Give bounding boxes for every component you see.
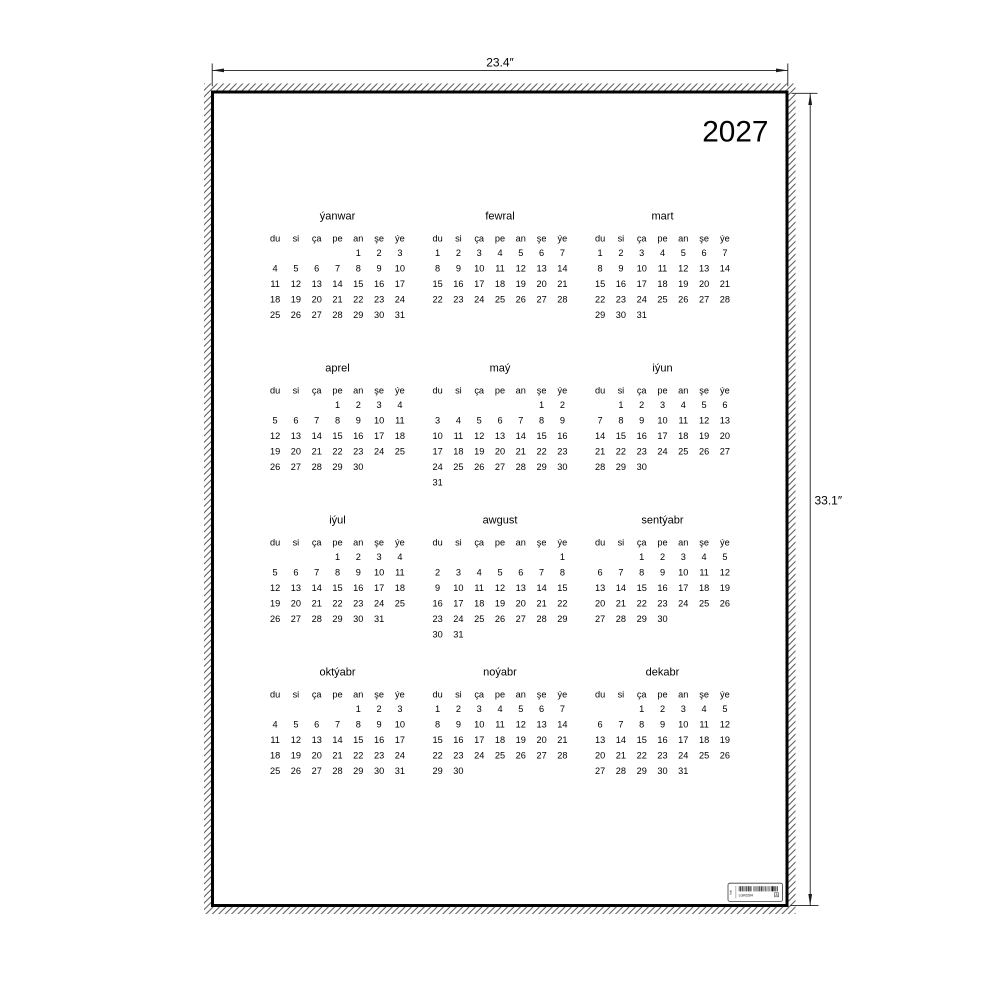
svg-text:3: 3 [377, 552, 382, 562]
svg-text:22: 22 [595, 294, 605, 304]
svg-text:20: 20 [536, 279, 546, 289]
svg-text:18: 18 [453, 446, 463, 456]
svg-text:28: 28 [516, 462, 526, 472]
svg-text:14: 14 [616, 583, 626, 593]
svg-text:1: 1 [618, 400, 623, 410]
svg-text:11: 11 [699, 720, 709, 730]
svg-text:ýe: ýe [395, 386, 405, 396]
svg-text:27: 27 [312, 310, 322, 320]
svg-text:25: 25 [395, 446, 405, 456]
svg-text:8: 8 [356, 720, 361, 730]
svg-text:10: 10 [395, 263, 405, 273]
svg-text:19: 19 [699, 431, 709, 441]
svg-text:10: 10 [374, 415, 384, 425]
svg-text:21: 21 [557, 735, 567, 745]
svg-text:19: 19 [720, 735, 730, 745]
svg-text:20: 20 [312, 751, 322, 761]
svg-text:2: 2 [639, 400, 644, 410]
svg-text:5: 5 [273, 568, 278, 578]
svg-text:an: an [516, 690, 526, 700]
svg-text:7: 7 [314, 568, 319, 578]
svg-text:si: si [618, 386, 625, 396]
svg-text:ça: ça [637, 690, 648, 700]
svg-text:17: 17 [374, 583, 384, 593]
svg-text:17: 17 [678, 735, 688, 745]
svg-text:28: 28 [332, 310, 342, 320]
svg-text:6: 6 [539, 248, 544, 258]
svg-text:18: 18 [270, 294, 280, 304]
svg-text:12: 12 [720, 720, 730, 730]
svg-text:si: si [455, 386, 462, 396]
svg-text:29: 29 [637, 614, 647, 624]
svg-text:6: 6 [293, 415, 298, 425]
svg-text:du: du [270, 233, 280, 243]
svg-text:12: 12 [516, 263, 526, 273]
svg-text:24: 24 [637, 294, 647, 304]
svg-text:9: 9 [456, 263, 461, 273]
svg-text:23: 23 [657, 599, 667, 609]
svg-text:pe: pe [495, 386, 505, 396]
svg-text:an: an [678, 690, 688, 700]
svg-text:26: 26 [516, 294, 526, 304]
svg-text:du: du [270, 538, 280, 548]
svg-text:26: 26 [270, 462, 280, 472]
svg-text:ýe: ýe [720, 690, 730, 700]
svg-text:an: an [678, 233, 688, 243]
svg-text:30: 30 [374, 310, 384, 320]
svg-text:21: 21 [616, 751, 626, 761]
svg-text:pe: pe [657, 690, 667, 700]
svg-text:15: 15 [353, 279, 363, 289]
svg-text:10: 10 [474, 720, 484, 730]
svg-text:16: 16 [616, 279, 626, 289]
svg-text:2: 2 [560, 400, 565, 410]
svg-text:4: 4 [497, 248, 502, 258]
svg-text:ça: ça [312, 233, 323, 243]
svg-text:ça: ça [474, 690, 485, 700]
svg-text:5: 5 [681, 248, 686, 258]
svg-text:30: 30 [616, 310, 626, 320]
svg-text:si: si [618, 538, 625, 548]
svg-text:16: 16 [453, 279, 463, 289]
svg-text:13: 13 [291, 583, 301, 593]
svg-text:4: 4 [273, 720, 278, 730]
svg-text:25: 25 [699, 599, 709, 609]
svg-text:3: 3 [377, 400, 382, 410]
svg-text:7: 7 [618, 720, 623, 730]
svg-text:30: 30 [353, 462, 363, 472]
svg-text:şe: şe [537, 690, 547, 700]
svg-text:5: 5 [722, 704, 727, 714]
svg-text:19: 19 [516, 735, 526, 745]
svg-text:şe: şe [537, 233, 547, 243]
svg-text:30: 30 [657, 766, 667, 776]
svg-text:13: 13 [720, 415, 730, 425]
svg-text:23: 23 [353, 599, 363, 609]
svg-text:8: 8 [435, 263, 440, 273]
svg-text:26: 26 [291, 766, 301, 776]
svg-text:2: 2 [456, 704, 461, 714]
svg-text:18: 18 [495, 735, 505, 745]
svg-text:18: 18 [474, 599, 484, 609]
svg-text:25: 25 [495, 751, 505, 761]
svg-text:16: 16 [374, 279, 384, 289]
svg-text:ýe: ýe [395, 538, 405, 548]
svg-text:19: 19 [270, 446, 280, 456]
svg-text:7: 7 [722, 248, 727, 258]
svg-text:29: 29 [353, 766, 363, 776]
svg-text:pe: pe [495, 233, 505, 243]
svg-text:22: 22 [432, 751, 442, 761]
svg-text:30: 30 [432, 630, 442, 640]
svg-text:13: 13 [536, 263, 546, 273]
svg-text:3: 3 [639, 248, 644, 258]
svg-text:ça: ça [474, 233, 485, 243]
svg-text:an: an [353, 386, 363, 396]
svg-text:12: 12 [474, 431, 484, 441]
svg-text:13: 13 [536, 720, 546, 730]
svg-text:şe: şe [374, 386, 384, 396]
svg-text:10: 10 [678, 720, 688, 730]
svg-text:si: si [618, 233, 625, 243]
svg-text:an: an [353, 690, 363, 700]
svg-text:13: 13 [312, 279, 322, 289]
svg-text:17: 17 [637, 279, 647, 289]
svg-text:11: 11 [395, 415, 405, 425]
svg-text:2: 2 [660, 704, 665, 714]
svg-text:an: an [678, 538, 688, 548]
svg-text:25: 25 [453, 462, 463, 472]
svg-text:9: 9 [456, 720, 461, 730]
svg-text:15: 15 [637, 583, 647, 593]
svg-text:26: 26 [291, 310, 301, 320]
svg-text:16: 16 [453, 735, 463, 745]
svg-text:28: 28 [312, 614, 322, 624]
svg-text:27: 27 [536, 294, 546, 304]
svg-text:ça: ça [474, 386, 485, 396]
svg-text:2027: 2027 [702, 116, 768, 149]
svg-text:27: 27 [595, 614, 605, 624]
svg-text:14: 14 [595, 431, 605, 441]
svg-text:20: 20 [536, 735, 546, 745]
svg-text:27: 27 [720, 446, 730, 456]
svg-text:si: si [455, 690, 462, 700]
svg-text:28: 28 [595, 462, 605, 472]
svg-text:24: 24 [395, 294, 405, 304]
svg-text:10: 10 [678, 568, 688, 578]
svg-text:14: 14 [720, 263, 730, 273]
svg-text:15: 15 [353, 735, 363, 745]
svg-text:du: du [432, 233, 442, 243]
svg-text:17: 17 [432, 446, 442, 456]
svg-text:10: 10 [657, 415, 667, 425]
svg-text:28: 28 [557, 751, 567, 761]
svg-text:21: 21 [595, 446, 605, 456]
svg-text:maý: maý [490, 362, 511, 374]
svg-text:7: 7 [618, 568, 623, 578]
svg-text:8: 8 [356, 263, 361, 273]
svg-text:20: 20 [291, 599, 301, 609]
svg-text:20: 20 [595, 751, 605, 761]
svg-text:1: 1 [639, 552, 644, 562]
svg-text:21: 21 [720, 279, 730, 289]
svg-text:3: 3 [681, 704, 686, 714]
svg-text:sentýabr: sentýabr [641, 515, 684, 527]
svg-text:5: 5 [518, 248, 523, 258]
svg-text:si: si [293, 233, 300, 243]
svg-text:19: 19 [678, 279, 688, 289]
svg-text:26: 26 [516, 751, 526, 761]
svg-text:oktýabr: oktýabr [319, 667, 355, 679]
svg-text:9: 9 [356, 415, 361, 425]
svg-text:27: 27 [699, 294, 709, 304]
svg-text:17: 17 [453, 599, 463, 609]
svg-text:6: 6 [539, 704, 544, 714]
svg-text:2: 2 [435, 568, 440, 578]
svg-text:ça: ça [637, 538, 648, 548]
svg-text:9: 9 [660, 720, 665, 730]
svg-text:12: 12 [291, 735, 301, 745]
svg-text:ýe: ýe [558, 233, 568, 243]
svg-text:26: 26 [495, 614, 505, 624]
svg-text:13: 13 [312, 735, 322, 745]
svg-text:1: 1 [639, 704, 644, 714]
svg-text:du: du [270, 386, 280, 396]
svg-text:15: 15 [332, 583, 342, 593]
svg-text:15: 15 [557, 583, 567, 593]
svg-text:16: 16 [657, 735, 667, 745]
svg-text:19: 19 [720, 583, 730, 593]
svg-text:12: 12 [291, 279, 301, 289]
svg-text:awgust: awgust [483, 515, 518, 527]
svg-text:24: 24 [374, 446, 384, 456]
svg-text:28: 28 [536, 614, 546, 624]
svg-text:7: 7 [518, 415, 523, 425]
svg-text:4: 4 [702, 704, 707, 714]
svg-text:8: 8 [435, 720, 440, 730]
svg-text:9: 9 [560, 415, 565, 425]
svg-text:12: 12 [720, 568, 730, 578]
svg-text:şe: şe [374, 233, 384, 243]
svg-text:9: 9 [618, 263, 623, 273]
svg-text:9: 9 [356, 568, 361, 578]
svg-text:23: 23 [432, 614, 442, 624]
svg-text:13: 13 [595, 735, 605, 745]
svg-text:8: 8 [335, 415, 340, 425]
svg-text:22: 22 [332, 599, 342, 609]
svg-text:31: 31 [432, 477, 442, 487]
svg-text:27: 27 [291, 462, 301, 472]
svg-text:1: 1 [356, 704, 361, 714]
svg-text:iýul: iýul [329, 515, 346, 527]
svg-text:3: 3 [397, 248, 402, 258]
svg-text:ça: ça [637, 233, 648, 243]
svg-text:ýe: ýe [558, 386, 568, 396]
svg-text:1: 1 [539, 400, 544, 410]
svg-text:du: du [432, 386, 442, 396]
svg-text:30: 30 [657, 614, 667, 624]
svg-text:an: an [353, 233, 363, 243]
svg-text:7: 7 [335, 263, 340, 273]
svg-text:14: 14 [516, 431, 526, 441]
svg-text:20: 20 [291, 446, 301, 456]
svg-text:16: 16 [557, 431, 567, 441]
svg-text:du: du [595, 386, 605, 396]
svg-text:ça: ça [637, 386, 648, 396]
svg-text:1: 1 [435, 248, 440, 258]
svg-text:1: 1 [335, 552, 340, 562]
svg-text:ýanwar: ýanwar [320, 210, 356, 222]
svg-text:ça: ça [312, 386, 323, 396]
svg-text:an: an [678, 386, 688, 396]
svg-text:6: 6 [314, 263, 319, 273]
svg-text:pe: pe [495, 690, 505, 700]
svg-text:7: 7 [560, 704, 565, 714]
svg-text:du: du [595, 538, 605, 548]
svg-text:1: 1 [560, 552, 565, 562]
svg-text:7: 7 [598, 415, 603, 425]
svg-text:23: 23 [616, 294, 626, 304]
svg-text:24: 24 [678, 751, 688, 761]
svg-text:10: 10 [374, 568, 384, 578]
svg-text:23: 23 [374, 751, 384, 761]
svg-text:24: 24 [432, 462, 442, 472]
svg-text:24: 24 [395, 751, 405, 761]
svg-text:23: 23 [637, 446, 647, 456]
svg-text:8: 8 [560, 568, 565, 578]
svg-text:12: 12 [516, 720, 526, 730]
svg-text:du: du [595, 233, 605, 243]
svg-text:13: 13 [291, 431, 301, 441]
svg-text:ça: ça [312, 690, 323, 700]
svg-text:23: 23 [353, 446, 363, 456]
svg-text:23.4″: 23.4″ [486, 55, 514, 69]
svg-text:5: 5 [273, 415, 278, 425]
svg-text:ýe: ýe [395, 233, 405, 243]
svg-text:15: 15 [536, 431, 546, 441]
svg-text:14: 14 [557, 720, 567, 730]
svg-text:1: 1 [435, 704, 440, 714]
svg-text:22: 22 [557, 599, 567, 609]
svg-text:6: 6 [702, 248, 707, 258]
svg-text:11: 11 [270, 279, 280, 289]
svg-text:17: 17 [395, 735, 405, 745]
svg-text:9: 9 [377, 263, 382, 273]
svg-text:10: 10 [637, 263, 647, 273]
svg-text:si: si [618, 690, 625, 700]
svg-text:17: 17 [374, 431, 384, 441]
svg-text:pe: pe [657, 386, 667, 396]
svg-text:12: 12 [678, 263, 688, 273]
svg-text:fewral: fewral [485, 210, 514, 222]
svg-text:ýe: ýe [558, 538, 568, 548]
svg-text:29: 29 [332, 462, 342, 472]
svg-text:20: 20 [312, 294, 322, 304]
svg-text:du: du [432, 538, 442, 548]
svg-text:30: 30 [353, 614, 363, 624]
svg-text:27: 27 [495, 462, 505, 472]
svg-text:10: 10 [432, 431, 442, 441]
svg-text:6: 6 [598, 720, 603, 730]
svg-text:15: 15 [637, 735, 647, 745]
svg-text:28: 28 [557, 294, 567, 304]
svg-text:13: 13 [516, 583, 526, 593]
svg-text:9: 9 [377, 720, 382, 730]
svg-text:pe: pe [332, 538, 342, 548]
svg-text:12: 12 [495, 583, 505, 593]
svg-text:5: 5 [497, 568, 502, 578]
svg-text:4: 4 [397, 552, 402, 562]
svg-text:20: 20 [699, 279, 709, 289]
svg-text:21: 21 [536, 599, 546, 609]
svg-text:14: 14 [616, 735, 626, 745]
svg-text:22: 22 [637, 599, 647, 609]
svg-text:pe: pe [332, 233, 342, 243]
svg-text:si: si [293, 538, 300, 548]
svg-text:18: 18 [699, 735, 709, 745]
svg-text:9: 9 [660, 568, 665, 578]
svg-text:şe: şe [699, 386, 709, 396]
svg-text:20: 20 [720, 431, 730, 441]
svg-text:11: 11 [495, 263, 505, 273]
svg-text:26: 26 [720, 599, 730, 609]
svg-text:an: an [516, 538, 526, 548]
svg-text:8: 8 [618, 415, 623, 425]
svg-text:15: 15 [616, 431, 626, 441]
svg-text:22: 22 [332, 446, 342, 456]
svg-text:13: 13 [699, 263, 709, 273]
svg-text:28: 28 [616, 766, 626, 776]
svg-text:16: 16 [432, 599, 442, 609]
svg-text:23: 23 [453, 294, 463, 304]
svg-text:31: 31 [395, 766, 405, 776]
svg-text:29: 29 [536, 462, 546, 472]
svg-text:18: 18 [699, 583, 709, 593]
svg-text:si: si [455, 233, 462, 243]
svg-text:29: 29 [595, 310, 605, 320]
svg-text:11: 11 [474, 583, 484, 593]
svg-text:ýe: ýe [720, 538, 730, 548]
svg-text:25: 25 [395, 599, 405, 609]
svg-text:21: 21 [557, 279, 567, 289]
svg-text:19: 19 [291, 294, 301, 304]
svg-text:15: 15 [595, 279, 605, 289]
svg-text:26: 26 [678, 294, 688, 304]
svg-text:21: 21 [332, 751, 342, 761]
svg-text:15: 15 [332, 431, 342, 441]
svg-text:25: 25 [699, 751, 709, 761]
svg-text:24: 24 [453, 614, 463, 624]
svg-text:ça: ça [474, 538, 485, 548]
svg-text:10: 10 [453, 583, 463, 593]
svg-text:23: 23 [657, 751, 667, 761]
svg-text:18: 18 [395, 583, 405, 593]
svg-text:19: 19 [474, 446, 484, 456]
svg-text:10: 10 [395, 720, 405, 730]
svg-text:13: 13 [595, 583, 605, 593]
svg-text:4: 4 [456, 415, 461, 425]
svg-text:2: 2 [377, 704, 382, 714]
svg-text:16: 16 [657, 583, 667, 593]
svg-text:7: 7 [560, 248, 565, 258]
svg-text:du: du [270, 690, 280, 700]
svg-text:5: 5 [477, 415, 482, 425]
svg-text:pe: pe [657, 233, 667, 243]
svg-text:29: 29 [616, 462, 626, 472]
svg-text:3: 3 [477, 248, 482, 258]
svg-text:30: 30 [637, 462, 647, 472]
svg-text:6: 6 [518, 568, 523, 578]
